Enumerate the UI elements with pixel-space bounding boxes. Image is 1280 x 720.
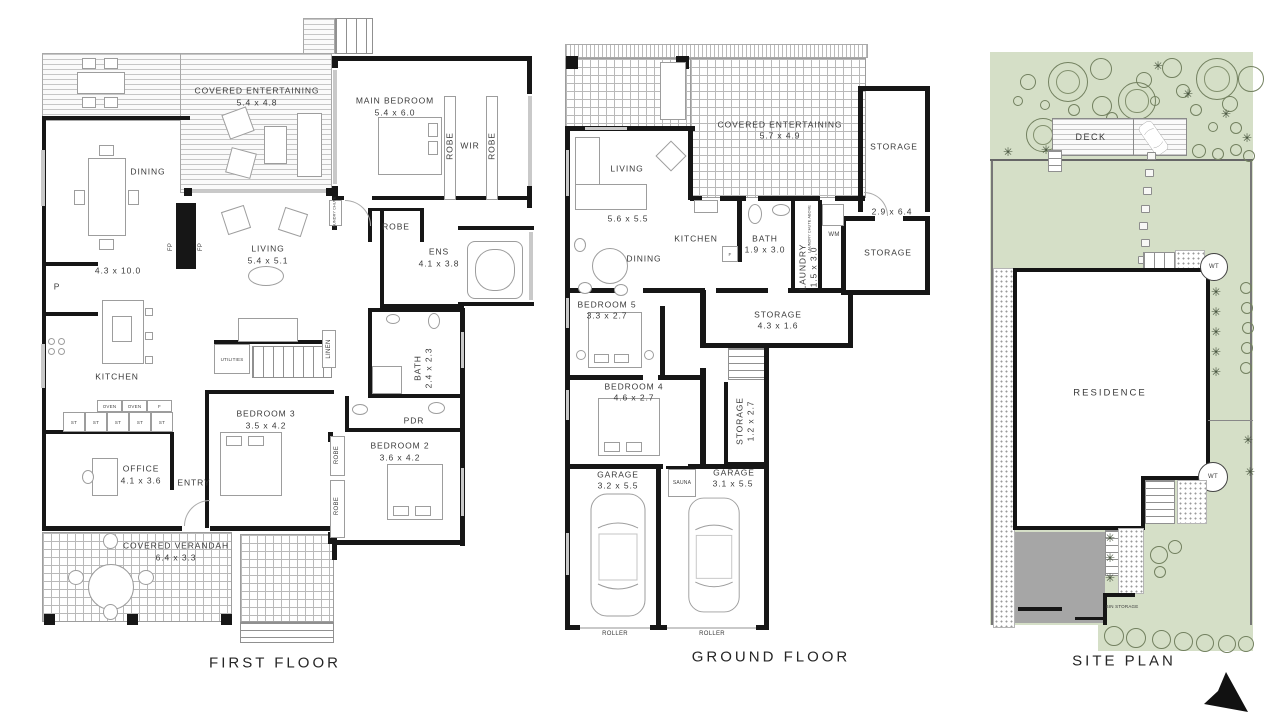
wall <box>334 540 464 545</box>
room-label: DINING <box>130 166 165 177</box>
cooktop-burner <box>58 348 65 355</box>
room-label: MAIN BEDROOM <box>356 95 434 106</box>
shrub-icon <box>1105 572 1115 584</box>
armchair <box>278 207 308 237</box>
chair <box>574 238 586 252</box>
room-dims: 2.9 x 6.4 <box>872 206 913 217</box>
stepping-stone <box>1147 152 1156 160</box>
tree-icon <box>1068 104 1080 116</box>
linen-label: LINEN <box>325 339 333 358</box>
shrub-icon <box>1105 532 1115 544</box>
wall <box>764 348 769 630</box>
tree-icon <box>1212 148 1224 160</box>
tree-icon <box>1090 58 1112 80</box>
wall <box>925 216 930 295</box>
shrub-icon <box>1245 466 1255 478</box>
wall <box>458 226 534 230</box>
room-label: STORAGE <box>754 309 802 320</box>
window <box>566 533 569 575</box>
room-label: LIVING <box>251 243 284 254</box>
north-arrow-icon <box>1204 672 1252 716</box>
room-dims: 3.3 x 2.7 <box>587 310 628 321</box>
chair <box>138 570 154 585</box>
wall <box>184 188 192 196</box>
room-dims: 6.4 x 3.3 <box>156 552 197 563</box>
wall <box>841 290 930 295</box>
room-dims: 4.1 x 3.6 <box>121 475 162 486</box>
deck-steps <box>1048 150 1062 172</box>
water-tank: WT <box>1200 253 1228 281</box>
stepping-stone <box>1143 187 1152 195</box>
room-label: COVERED ENTERTAINING <box>718 119 843 130</box>
chair <box>82 97 96 108</box>
door-arc <box>345 200 371 226</box>
wall <box>858 86 863 212</box>
shrub-icon <box>1003 146 1013 158</box>
door-arc <box>184 500 210 526</box>
post <box>221 614 232 625</box>
room-dims: 4.3 x 1.6 <box>758 320 799 331</box>
rug <box>248 266 284 286</box>
cooktop-burner <box>48 348 55 355</box>
chair <box>103 604 118 620</box>
tree-icon <box>1136 72 1152 88</box>
sofa <box>238 318 298 342</box>
fence-line <box>1208 420 1253 421</box>
office-chair <box>82 470 94 484</box>
room-dims: 5.6 x 5.5 <box>608 213 649 224</box>
wall <box>758 196 820 201</box>
tree-icon <box>1240 362 1252 374</box>
bathtub-inner <box>475 249 515 291</box>
window <box>461 332 464 368</box>
wm-label: WM <box>828 231 839 239</box>
tree-icon <box>1150 546 1168 564</box>
robe-label: ROBE <box>333 497 341 515</box>
robe-label: ROBE <box>333 446 341 464</box>
toilet <box>428 402 445 414</box>
armchair <box>221 205 251 235</box>
wall <box>791 200 795 288</box>
tree-icon <box>1230 144 1242 156</box>
side-table <box>576 350 586 360</box>
chair <box>128 190 139 205</box>
fireplace-label: FP <box>197 243 205 251</box>
pebble-patch <box>1177 480 1207 524</box>
wall <box>700 368 706 468</box>
tree-icon <box>1040 100 1050 110</box>
appliance <box>145 308 153 316</box>
window <box>529 232 533 300</box>
residence-label: RESIDENCE <box>1073 388 1146 401</box>
room-label: PDR <box>404 415 425 426</box>
pillow <box>594 354 609 363</box>
tree-icon <box>1152 630 1171 649</box>
shrub-icon <box>1221 108 1231 120</box>
site-plan-title: SITE PLAN <box>1072 653 1176 670</box>
storage-cell: ST <box>63 412 85 432</box>
roller-door <box>667 627 756 629</box>
water-tank-label: WT <box>1208 473 1218 481</box>
room-label: STORAGE <box>870 141 918 152</box>
basin <box>772 204 790 216</box>
window <box>192 190 326 193</box>
wall <box>841 216 846 295</box>
room-dims: 4.1 x 3.8 <box>419 258 460 269</box>
tree-icon <box>1208 122 1218 132</box>
roller-label: ROLLER <box>699 630 725 638</box>
chair <box>74 190 85 205</box>
path-steps <box>1145 480 1175 524</box>
tree-icon <box>1013 96 1023 106</box>
room-label: BATH <box>752 233 778 244</box>
toilet <box>428 313 440 329</box>
car <box>588 492 648 618</box>
outdoor-table <box>77 72 125 94</box>
storage-cell: ST <box>151 412 173 432</box>
room-dims: 4.6 x 2.7 <box>614 392 655 403</box>
window <box>528 96 532 186</box>
fridge-cell: F <box>147 400 172 412</box>
stepping-stone <box>1141 239 1150 247</box>
shrub-icon <box>1211 286 1221 298</box>
room-dims: 3.6 x 4.2 <box>380 452 421 463</box>
room-dims: 5.4 x 5.1 <box>248 255 289 266</box>
floorplan-sheet: UTILITIES OVEN OVEN F ST ST ST ST ST <box>0 0 1280 720</box>
shrub-icon <box>1242 132 1252 144</box>
wall <box>688 126 693 200</box>
room-dims: 5.7 x 4.9 <box>760 130 801 141</box>
wall <box>458 302 534 306</box>
wall <box>565 464 663 469</box>
window <box>461 468 464 516</box>
wall <box>345 396 349 432</box>
kitchen-sink <box>694 200 718 213</box>
wall <box>1103 593 1135 597</box>
deck-edge <box>565 44 868 58</box>
wall <box>42 262 98 266</box>
fireplace <box>176 203 196 269</box>
storage-cell: ST <box>129 412 151 432</box>
shrub-icon <box>1183 88 1193 100</box>
wall <box>420 210 424 242</box>
first-floor-title: FIRST FLOOR <box>209 655 341 672</box>
deck-divider <box>1133 118 1134 156</box>
dining-table-round <box>592 248 628 284</box>
wall <box>334 56 532 61</box>
appliance <box>145 356 153 364</box>
pillow <box>226 436 242 446</box>
wall <box>720 196 746 201</box>
wall <box>724 382 728 466</box>
room-dims: 2.4 x 2.3 <box>423 348 434 389</box>
tree-icon <box>1238 636 1254 652</box>
chair <box>578 282 592 294</box>
room-dims: 3.5 x 4.2 <box>246 420 287 431</box>
pillow <box>248 436 264 446</box>
porch-steps <box>240 622 334 643</box>
window <box>41 344 45 388</box>
window <box>566 150 569 196</box>
fence-line <box>990 159 1253 161</box>
room-label: COVERED VERANDAH <box>123 540 229 551</box>
wall <box>565 375 643 380</box>
tree-icon <box>1104 626 1124 646</box>
shrub-icon <box>1243 434 1253 446</box>
pillow <box>428 141 438 155</box>
tree-icon <box>1020 74 1036 90</box>
pillow <box>604 442 620 452</box>
boundary-line <box>1250 160 1252 625</box>
deck-landing <box>303 18 335 54</box>
shrub-icon <box>1105 552 1115 564</box>
wall <box>656 466 661 630</box>
tree-icon <box>1230 122 1242 134</box>
room-label: BEDROOM 4 <box>604 381 663 392</box>
retaining-wall <box>1075 617 1105 620</box>
pillow <box>393 506 409 516</box>
room-label: STORAGE <box>864 247 912 258</box>
window <box>585 127 627 130</box>
room-label: BEDROOM 2 <box>370 440 429 451</box>
tree-icon <box>1154 566 1166 578</box>
room-label: GARAGE <box>713 467 755 478</box>
room-label: BEDROOM 3 <box>236 408 295 419</box>
room-label: ROBE <box>486 132 497 160</box>
chair <box>103 533 118 549</box>
tree-icon <box>1238 66 1264 92</box>
window <box>333 70 337 184</box>
wall <box>368 308 464 312</box>
pebble-path <box>1118 528 1144 594</box>
washing-machine <box>822 204 844 226</box>
pillow <box>415 506 431 516</box>
deck-label: DECK <box>1075 131 1106 143</box>
wall <box>756 625 769 630</box>
wall <box>716 288 768 293</box>
water-tank-label: WT <box>1209 263 1219 271</box>
window <box>566 390 569 420</box>
tree-icon <box>1126 628 1146 648</box>
basin <box>352 404 368 415</box>
wall <box>841 216 875 221</box>
room-label: ENS <box>429 246 449 257</box>
basin <box>386 314 400 324</box>
tree-icon <box>1242 322 1254 334</box>
tree-icon <box>1168 540 1182 554</box>
laundry-chute-label: LAUNDRY CHUTE <box>332 196 337 229</box>
roller-label: ROLLER <box>602 630 628 638</box>
wall <box>208 390 334 394</box>
oven-cell: OVEN <box>122 400 147 412</box>
tree-icon <box>1162 58 1182 78</box>
tree-icon <box>1241 342 1253 354</box>
room-label: BEDROOM 5 <box>577 299 636 310</box>
room-label: ROBE <box>382 221 410 232</box>
storage-cell: ST <box>85 412 107 432</box>
room-dims: 4.3 x 10.0 <box>95 265 141 276</box>
room-dims: 1.2 x 2.7 <box>745 401 756 442</box>
front-porch <box>240 534 334 622</box>
room-label: STORAGE <box>734 397 745 445</box>
tree-icon <box>1190 104 1202 116</box>
shrub-icon <box>1211 346 1221 358</box>
tree-icon <box>1243 150 1255 162</box>
wall <box>42 312 98 316</box>
room-dims: 3.1 x 5.5 <box>713 478 754 489</box>
outdoor-sofa <box>297 113 322 177</box>
tree-icon <box>1150 96 1160 106</box>
stepping-stone <box>1145 169 1154 177</box>
wall <box>848 290 853 346</box>
toilet <box>748 204 762 224</box>
pantry-label: P <box>54 281 61 292</box>
oven-cell: OVEN <box>97 400 122 412</box>
fireplace-label: FP <box>167 243 175 251</box>
post <box>566 56 578 69</box>
wall <box>858 86 930 91</box>
coffee-table <box>264 126 287 164</box>
tree-icon <box>1218 635 1236 653</box>
stepping-stone <box>1139 222 1148 230</box>
tree-icon <box>1196 634 1214 652</box>
tree-icon <box>1196 58 1238 100</box>
bench <box>660 62 686 120</box>
room-label: KITCHEN <box>95 371 139 382</box>
post <box>127 614 138 625</box>
side-table <box>644 350 654 360</box>
wall <box>42 116 190 120</box>
bin-storage-label: BIN STORAGE <box>1105 604 1139 610</box>
pillow <box>428 123 438 137</box>
office-desk <box>92 458 118 496</box>
wall <box>170 432 174 490</box>
room-dims: 5.4 x 6.0 <box>375 107 416 118</box>
wall <box>527 56 532 94</box>
cooktop-burner <box>58 338 65 345</box>
ground-floor-title: GROUND FLOOR <box>692 649 851 666</box>
window <box>41 150 45 206</box>
retaining-wall <box>1018 607 1062 611</box>
tree-icon <box>1174 632 1193 651</box>
tree-icon <box>1192 144 1206 158</box>
chair <box>68 570 84 585</box>
chair <box>104 97 118 108</box>
room-label: DINING <box>626 253 661 264</box>
room-dims: 1.9 x 3.0 <box>745 244 786 255</box>
roller-door <box>580 627 650 629</box>
room-label: COVERED ENTERTAINING <box>195 85 320 96</box>
appliance <box>145 332 153 340</box>
wall <box>368 394 464 398</box>
tree-icon <box>1241 302 1253 314</box>
room-label: ROBE <box>444 132 455 160</box>
fridge-cell: F <box>722 246 738 262</box>
staircase <box>728 348 766 380</box>
island-sink <box>112 316 132 342</box>
stepping-stone <box>1141 205 1150 213</box>
sofa <box>575 184 647 210</box>
shrub-icon <box>1153 60 1163 72</box>
wall <box>660 306 665 378</box>
wall <box>643 288 705 293</box>
room-label: BATH <box>412 355 423 381</box>
wall <box>326 188 334 196</box>
shrub-icon <box>1211 326 1221 338</box>
wall <box>332 56 338 68</box>
room-label: OFFICE <box>123 463 160 474</box>
exterior-stairs <box>335 18 373 54</box>
chair <box>104 58 118 69</box>
car <box>686 492 742 618</box>
shower <box>372 366 402 394</box>
dining-table <box>88 158 126 236</box>
room-dims: 5.4 x 4.8 <box>237 97 278 108</box>
pillow <box>626 442 642 452</box>
wall <box>565 625 580 630</box>
armchair <box>655 140 686 171</box>
room-dims: 3.2 x 5.5 <box>598 480 639 491</box>
chair <box>82 58 96 69</box>
chair <box>614 284 628 296</box>
cooktop-burner <box>48 338 55 345</box>
wall <box>368 208 424 211</box>
tree-icon <box>1048 62 1088 102</box>
wall <box>925 86 930 212</box>
room-label: WIR <box>460 140 479 151</box>
shrub-icon <box>1211 306 1221 318</box>
room-label: GARAGE <box>597 469 639 480</box>
wall <box>42 526 182 531</box>
wall <box>658 375 704 380</box>
room-label: ENTRY <box>177 477 210 488</box>
storage-cell: ST <box>107 412 129 432</box>
tree-icon <box>1240 282 1252 294</box>
chair <box>99 145 114 156</box>
laundry-chute-label: LAUNDRY CHUTE ABOVE <box>807 205 812 253</box>
room-label: LIVING <box>610 163 643 174</box>
wall <box>700 290 706 348</box>
staircase <box>252 346 332 378</box>
window <box>566 298 569 328</box>
pillow <box>614 354 629 363</box>
wall <box>460 308 465 438</box>
wall <box>345 428 465 432</box>
utilities-box: UTILITIES <box>214 344 250 374</box>
post <box>44 614 55 625</box>
shrub-icon <box>1211 366 1221 378</box>
wall <box>650 625 667 630</box>
chair <box>99 239 114 250</box>
room-label: KITCHEN <box>674 233 718 244</box>
wall <box>210 526 334 531</box>
